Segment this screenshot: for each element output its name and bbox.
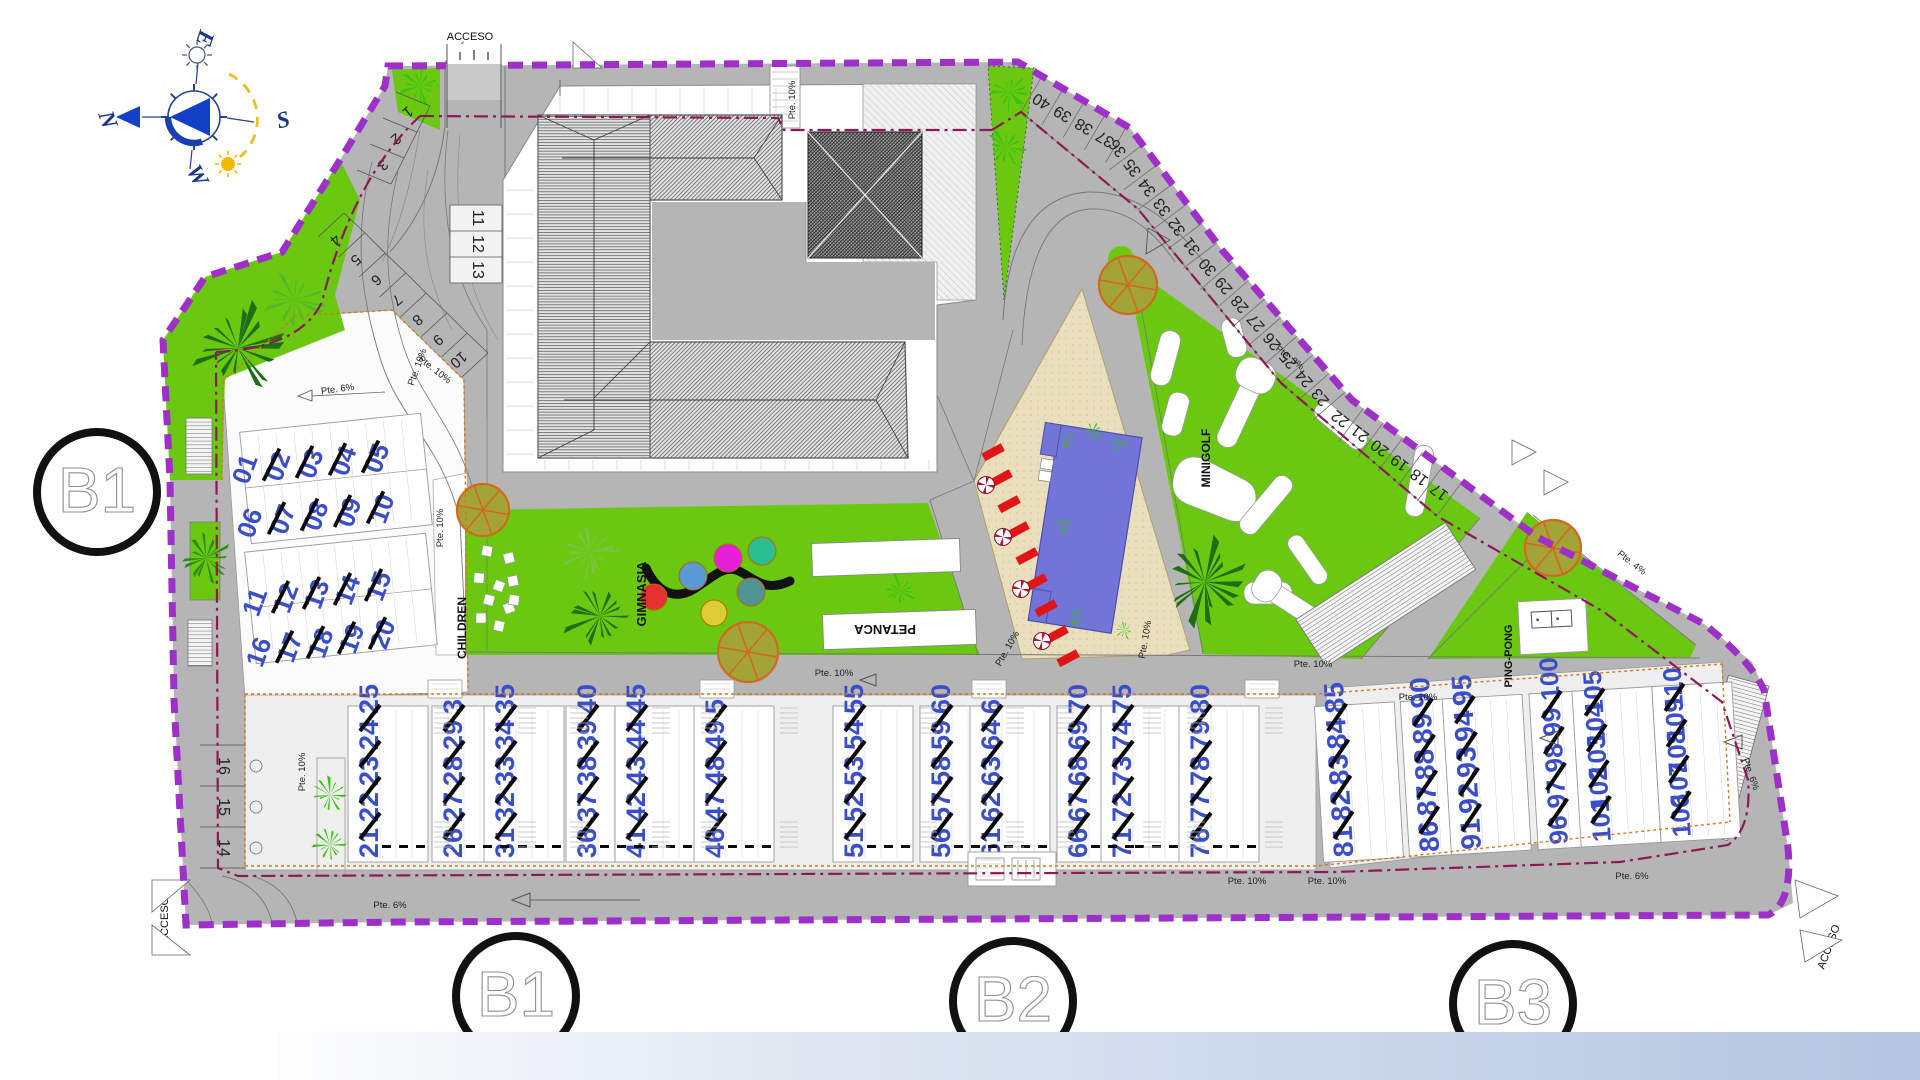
svg-text:Pte. 10%: Pte. 10% [787,80,798,119]
svg-text:64: 64 [976,720,1006,750]
svg-text:B1: B1 [477,958,555,1030]
svg-text:11: 11 [469,210,486,227]
svg-text:110: 110 [1657,667,1689,711]
svg-text:12: 12 [469,235,486,253]
svg-text:GIMNASIA: GIMNASIA [634,561,649,627]
svg-text:43: 43 [621,756,651,786]
svg-text:87: 87 [1410,784,1443,817]
svg-text:28: 28 [438,756,468,786]
svg-text:74: 74 [1107,720,1137,750]
svg-text:38: 38 [572,756,602,786]
svg-text:60: 60 [926,684,956,714]
svg-text:105: 105 [1577,670,1610,715]
svg-text:PETANCA: PETANCA [853,622,915,637]
svg-text:37: 37 [572,792,602,822]
svg-text:W: W [182,160,215,192]
svg-text:42: 42 [621,792,651,822]
svg-text:62: 62 [976,792,1006,822]
svg-text:31: 31 [490,828,520,858]
svg-text:44: 44 [621,720,651,750]
svg-text:Pte. 10%: Pte. 10% [1294,659,1333,670]
svg-text:46: 46 [700,828,730,858]
svg-text:N: N [93,106,123,132]
svg-text:33: 33 [490,756,520,786]
svg-text:Pte. 10%: Pte. 10% [1399,692,1438,703]
svg-text:95: 95 [1446,674,1479,707]
svg-text:80: 80 [1185,684,1215,714]
svg-text:B2: B2 [974,963,1052,1035]
svg-text:MINIGOLF: MINIGOLF [1199,429,1213,488]
svg-text:73: 73 [1107,756,1137,786]
svg-text:72: 72 [1107,792,1137,822]
svg-text:S: S [274,106,293,133]
svg-text:23: 23 [354,756,384,786]
svg-text:55: 55 [839,684,869,714]
svg-text:67: 67 [1063,792,1093,822]
svg-text:35: 35 [490,684,520,714]
svg-text:36: 36 [572,828,602,858]
svg-text:Pte. 10%: Pte. 10% [1228,876,1267,887]
svg-text:Pte. 6%: Pte. 6% [373,900,407,911]
svg-text:84: 84 [1320,717,1353,750]
svg-text:69: 69 [1063,720,1093,750]
svg-text:79: 79 [1185,720,1215,750]
svg-text:21: 21 [354,828,384,858]
svg-text:58: 58 [926,756,956,786]
svg-text:54: 54 [839,720,869,750]
svg-text:83: 83 [1322,753,1355,786]
svg-text:Pte. 10%: Pte. 10% [297,752,308,791]
svg-text:39: 39 [572,720,602,750]
svg-text:Pte. 10%: Pte. 10% [435,508,446,547]
svg-text:63: 63 [976,756,1006,786]
svg-text:81: 81 [1327,825,1360,858]
svg-text:93: 93 [1450,746,1483,779]
svg-text:52: 52 [839,792,869,822]
svg-text:94: 94 [1448,709,1481,742]
svg-text:92: 92 [1452,782,1485,815]
svg-text:49: 49 [700,720,730,750]
svg-text:27: 27 [438,792,468,822]
svg-text:22: 22 [354,792,384,822]
svg-text:89: 89 [1406,712,1439,745]
svg-text:71: 71 [1107,828,1137,858]
svg-text:48: 48 [700,756,730,786]
svg-text:99: 99 [1536,707,1568,738]
svg-text:Pte. 4%: Pte. 4% [1615,548,1648,577]
svg-text:24: 24 [354,720,384,750]
svg-text:45: 45 [621,684,651,714]
svg-text:88: 88 [1408,748,1441,781]
svg-text:32: 32 [490,792,520,822]
svg-text:75: 75 [1107,684,1137,714]
svg-text:ACCESO: ACCESO [447,31,494,43]
svg-text:26: 26 [438,828,468,858]
svg-text:59: 59 [926,720,956,750]
svg-text:98: 98 [1538,743,1570,774]
svg-text:66: 66 [1063,828,1093,858]
svg-text:76: 76 [1185,828,1215,858]
svg-text:B3: B3 [1474,966,1552,1038]
svg-text:Pte. 10%: Pte. 10% [815,668,854,679]
svg-text:97: 97 [1540,779,1572,810]
svg-text:Pte. 10%: Pte. 10% [1308,876,1347,887]
svg-text:91: 91 [1454,818,1487,851]
svg-text:68: 68 [1063,756,1093,786]
svg-text:PING-PONG: PING-PONG [1503,625,1515,688]
svg-text:85: 85 [1318,681,1351,714]
svg-text:78: 78 [1185,756,1215,786]
svg-text:86: 86 [1412,820,1445,853]
svg-text:40: 40 [572,684,602,714]
svg-text:13: 13 [469,261,486,279]
svg-text:41: 41 [621,828,651,858]
svg-text:Pte. 6%: Pte. 6% [1615,871,1649,882]
svg-text:B1: B1 [58,454,136,526]
svg-text:25: 25 [354,684,384,714]
svg-text:77: 77 [1185,792,1215,822]
svg-text:47: 47 [700,792,730,822]
svg-text:51: 51 [839,828,869,858]
svg-text:70: 70 [1063,684,1093,714]
svg-text:29: 29 [438,720,468,750]
svg-text:34: 34 [490,720,520,750]
svg-text:53: 53 [839,756,869,786]
svg-text:56: 56 [926,828,956,858]
svg-text:82: 82 [1324,789,1357,822]
svg-text:57: 57 [926,792,956,822]
